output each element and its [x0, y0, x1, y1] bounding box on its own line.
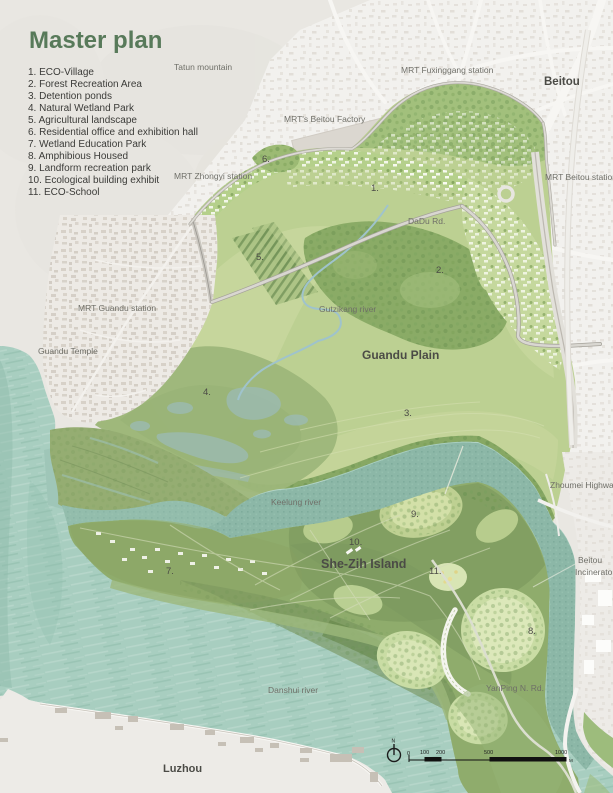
svg-text:MRT Beitou station: MRT Beitou station: [545, 172, 613, 182]
svg-text:Keelung river: Keelung river: [271, 497, 321, 507]
svg-text:Danshui river: Danshui river: [268, 685, 318, 695]
svg-text:9. Landform recreation park: 9. Landform recreation park: [28, 163, 152, 174]
svg-text:3.: 3.: [404, 408, 412, 419]
svg-text:1.: 1.: [371, 183, 379, 194]
svg-text:M: M: [569, 758, 573, 763]
svg-text:Zhoumei Highway: Zhoumei Highway: [550, 480, 613, 490]
svg-text:She-Zih Island: She-Zih Island: [321, 557, 406, 571]
svg-text:0: 0: [407, 751, 410, 757]
svg-text:Master plan: Master plan: [29, 27, 162, 54]
svg-text:7. Wetland Education Park: 7. Wetland Education Park: [28, 139, 147, 150]
svg-text:Incinerator: Incinerator: [575, 567, 613, 577]
svg-text:1000: 1000: [555, 750, 567, 756]
svg-text:YanPing N. Rd.: YanPing N. Rd.: [486, 683, 544, 693]
svg-text:MRT Zhongyi station: MRT Zhongyi station: [174, 171, 252, 181]
svg-text:Beitou: Beitou: [544, 76, 580, 88]
svg-text:100: 100: [420, 750, 429, 756]
svg-text:MRT Guandu station: MRT Guandu station: [78, 303, 156, 313]
svg-text:2.: 2.: [436, 265, 444, 276]
svg-text:9.: 9.: [411, 509, 419, 520]
svg-text:Beitou: Beitou: [578, 555, 602, 565]
svg-text:5. Agricultural landscape: 5. Agricultural landscape: [28, 115, 137, 126]
svg-text:4. Natural Wetland Park: 4. Natural Wetland Park: [28, 103, 135, 114]
svg-text:Guandu Temple: Guandu Temple: [38, 346, 98, 356]
svg-text:11.: 11.: [429, 566, 442, 577]
svg-text:8. Amphibious Housed: 8. Amphibious Housed: [28, 151, 128, 162]
svg-text:Tatun mountain: Tatun mountain: [174, 62, 232, 72]
svg-text:500: 500: [484, 750, 493, 756]
svg-text:Gutzikang river: Gutzikang river: [319, 304, 376, 314]
svg-text:6.: 6.: [262, 154, 270, 165]
svg-text:Guandu Plain: Guandu Plain: [362, 348, 439, 362]
svg-text:6. Residential office and exhi: 6. Residential office and exhibition hal…: [28, 127, 198, 138]
svg-text:8.: 8.: [528, 626, 536, 637]
svg-text:7.: 7.: [166, 566, 174, 577]
svg-text:N: N: [392, 739, 396, 745]
svg-text:3. Detention ponds: 3. Detention ponds: [28, 91, 112, 102]
svg-text:1. ECO-Village: 1. ECO-Village: [28, 67, 94, 78]
svg-text:Luzhou: Luzhou: [163, 763, 202, 775]
svg-text:4.: 4.: [203, 387, 211, 398]
svg-text:5.: 5.: [256, 252, 264, 263]
svg-text:200: 200: [436, 750, 445, 756]
svg-text:DaDu Rd.: DaDu Rd.: [408, 216, 445, 226]
svg-text:10.: 10.: [349, 537, 362, 548]
svg-text:2. Forest Recreation Area: 2. Forest Recreation Area: [28, 79, 142, 90]
svg-text:11. ECO-School: 11. ECO-School: [28, 187, 100, 198]
svg-text:10. Ecological building exhibi: 10. Ecological building exhibit: [28, 175, 159, 186]
svg-text:MRT's Beitou Factory: MRT's Beitou Factory: [284, 114, 366, 124]
svg-text:MRT Fuxinggang station: MRT Fuxinggang station: [401, 65, 494, 75]
